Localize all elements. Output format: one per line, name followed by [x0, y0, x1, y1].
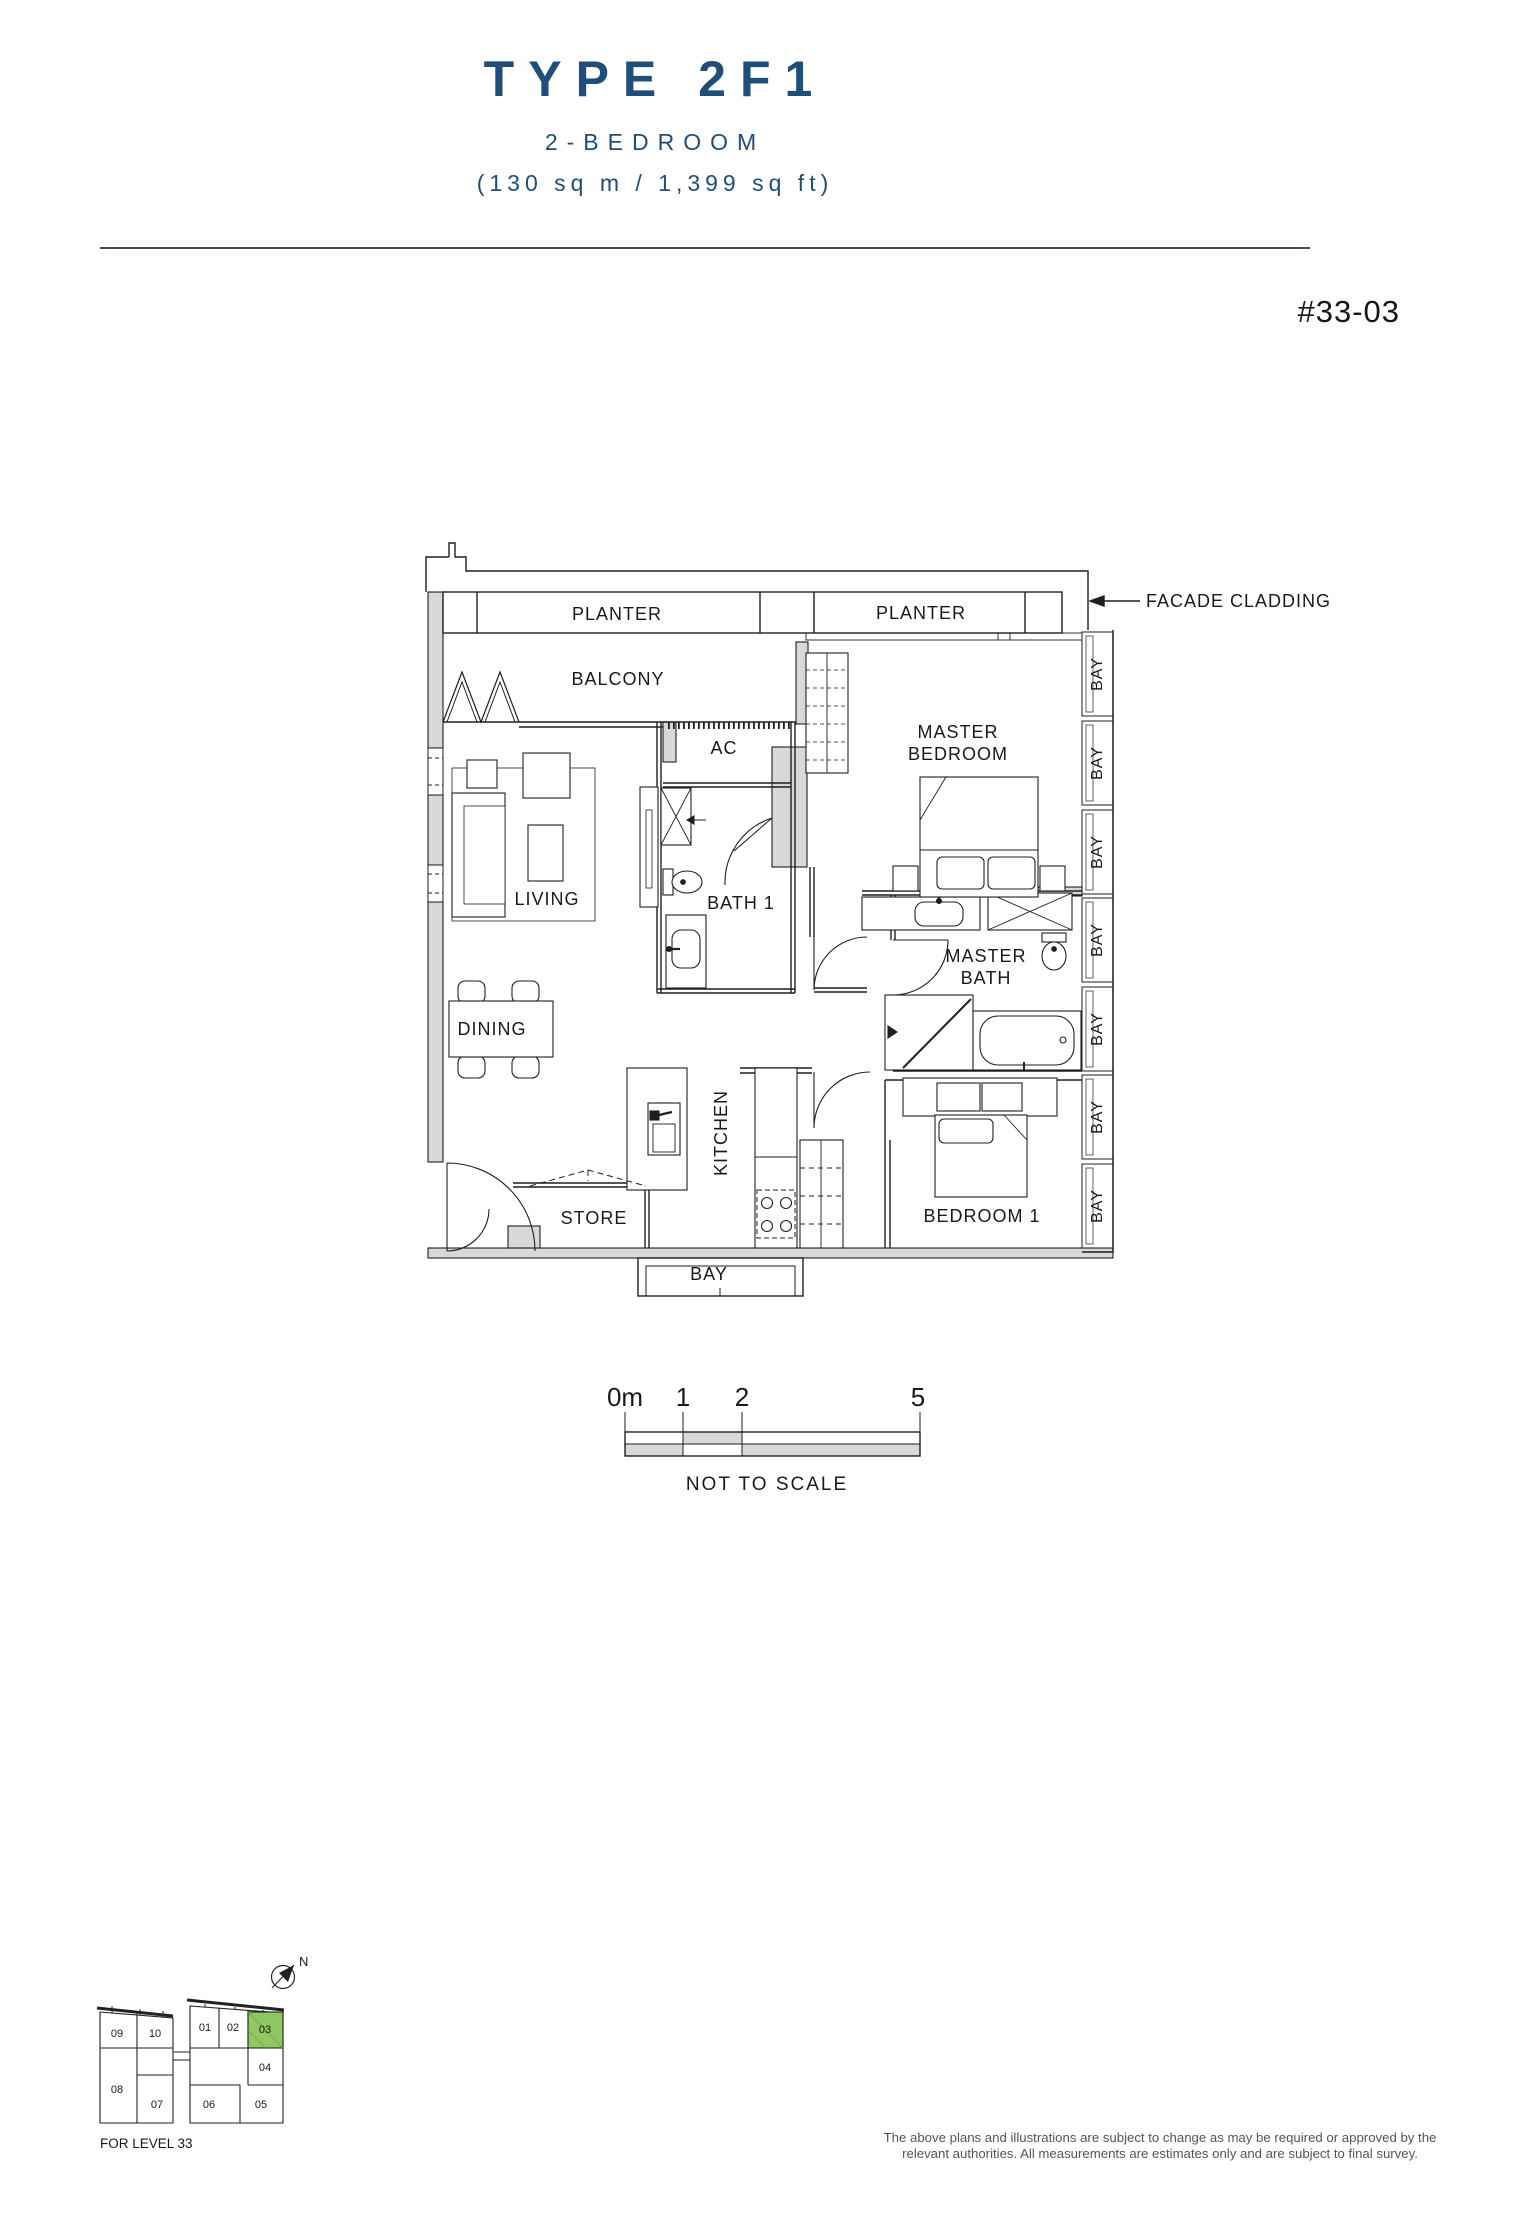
bedroom1-label: BEDROOM 1 — [923, 1206, 1040, 1226]
scale-tick-1: 1 — [676, 1382, 690, 1412]
living-label: LIVING — [514, 889, 579, 909]
keyplan-unit-01: 01 — [199, 2022, 211, 2034]
bay-label-4: BAY — [1089, 923, 1106, 957]
kitchen-fixtures — [627, 1068, 843, 1248]
ac-label: AC — [710, 738, 737, 758]
planter-left-label: PLANTER — [572, 604, 662, 624]
floor-plan-drawing: PLANTER PLANTER BALCONY LIVING DINING AC… — [0, 0, 1536, 2233]
not-to-scale-note: NOT TO SCALE — [686, 1474, 848, 1495]
scale-tick-2: 2 — [735, 1382, 749, 1412]
keyplan-unit-03: 03 — [259, 2024, 271, 2036]
planter-band — [443, 592, 1062, 633]
store-label: STORE — [561, 1208, 628, 1228]
disclaimer-line-2: relevant authorities. All measurements a… — [902, 2146, 1418, 2161]
keyplan-unit-08: 08 — [111, 2084, 123, 2096]
planter-right-label: PLANTER — [876, 603, 966, 623]
plan-labels: PLANTER PLANTER BALCONY LIVING DINING AC… — [458, 591, 1332, 1284]
bedroom1-furniture — [903, 1078, 1057, 1197]
keyplan-unit-02: 02 — [227, 2022, 239, 2034]
keyplan-unit-05: 05 — [255, 2099, 267, 2111]
disclaimer-line-1: The above plans and illustrations are su… — [884, 2130, 1437, 2145]
bay-label-2: BAY — [1089, 746, 1106, 780]
disclaimer: The above plans and illustrations are su… — [810, 2130, 1510, 2162]
facade-cladding-label: FACADE CLADDING — [1146, 591, 1331, 611]
keyplan-unit-07: 07 — [151, 2099, 163, 2111]
keyplan-unit-09: 09 — [111, 2028, 123, 2040]
master-bedroom-furniture — [806, 653, 1065, 897]
keyplan-unit-10: 10 — [149, 2028, 161, 2040]
north-arrow-icon — [272, 1965, 295, 1989]
bay-label-7: BAY — [1089, 1189, 1106, 1223]
bay-label-5: BAY — [1089, 1012, 1106, 1046]
key-plan: 09 10 08 07 01 02 03 04 05 06 N FOR LEVE… — [97, 1954, 308, 2151]
plan-linework — [426, 543, 1140, 1296]
mbr-window — [806, 633, 1082, 640]
kitchen-label: KITCHEN — [711, 1090, 731, 1176]
master-bath-label-1: MASTER — [945, 946, 1026, 966]
master-bedroom-label-2: BEDROOM — [908, 744, 1008, 764]
bath1-label: BATH 1 — [707, 893, 775, 913]
keyplan-unit-06: 06 — [203, 2099, 215, 2111]
floor-plan-sheet: TYPE 2F1 2-BEDROOM (130 sq m / 1,399 sq … — [0, 0, 1536, 2233]
north-label: N — [299, 1954, 308, 1969]
scale-tick-3: 5 — [911, 1382, 925, 1412]
bath1-fixtures — [661, 788, 706, 988]
master-bath-label-2: BATH — [961, 968, 1012, 988]
bay-label-3: BAY — [1089, 835, 1106, 869]
dining-label: DINING — [458, 1019, 527, 1039]
bay-window-label: BAY — [690, 1264, 728, 1284]
master-bedroom-label-1: MASTER — [917, 722, 998, 742]
scale-bar: 0m 1 2 5 NOT TO SCALE — [607, 1382, 925, 1495]
balcony-label: BALCONY — [571, 669, 664, 689]
bay-label-1: BAY — [1089, 657, 1106, 691]
keyplan-unit-04: 04 — [259, 2062, 271, 2074]
scale-tick-0: 0m — [607, 1382, 643, 1412]
facade-cladding-callout — [1090, 596, 1140, 606]
level-note: FOR LEVEL 33 — [100, 2136, 193, 2151]
bay-label-6: BAY — [1089, 1100, 1106, 1134]
